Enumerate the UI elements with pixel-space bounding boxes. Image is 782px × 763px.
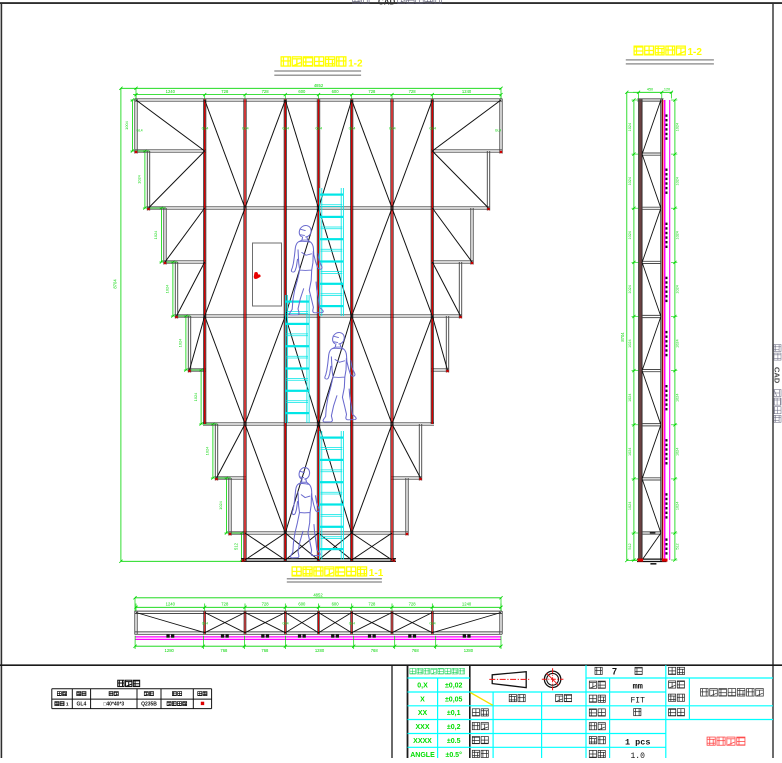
svg-text:1024: 1024 [675,393,679,401]
svg-text:mm: mm [633,682,643,692]
svg-text:1024: 1024 [193,392,198,401]
svg-text:1024: 1024 [153,230,158,239]
svg-text:GL4: GL4 [315,127,322,131]
svg-text:±0,1: ±0,1 [447,710,461,717]
svg-text:1.0: 1.0 [630,752,645,758]
svg-text:CAD: CAD [378,0,396,7]
svg-text:600: 600 [298,89,306,94]
svg-text:600: 600 [298,602,306,607]
svg-text:1-1: 1-1 [369,568,384,579]
svg-text:728: 728 [262,602,270,607]
svg-text:GL4: GL4 [429,622,435,626]
svg-text:1024: 1024 [628,502,632,510]
svg-text:728: 728 [409,602,417,607]
svg-text:1024: 1024 [628,123,632,131]
svg-text:GL4: GL4 [136,129,142,133]
svg-text:1004: 1004 [124,120,129,129]
svg-text:512: 512 [628,543,632,549]
svg-text:CAD: CAD [773,367,782,384]
svg-text:1024: 1024 [675,231,679,239]
svg-text:±0.5°: ±0.5° [446,751,463,758]
svg-text:768: 768 [371,648,379,653]
svg-text:XXXX: XXXX [413,738,432,745]
svg-text:Q235B: Q235B [141,702,157,708]
svg-text:728: 728 [409,89,417,94]
svg-text:8704: 8704 [620,332,625,342]
svg-text:GL4: GL4 [389,127,396,131]
svg-text:7: 7 [612,667,617,677]
svg-text:1024: 1024 [675,285,679,293]
svg-text:GL4: GL4 [282,127,289,131]
svg-text:1024: 1024 [675,339,679,347]
svg-text:1280: 1280 [165,648,175,653]
svg-text:±0,02: ±0,02 [445,683,463,690]
svg-text:1024: 1024 [675,123,679,131]
svg-text:0,X: 0,X [417,683,428,690]
svg-text:1240: 1240 [166,602,176,607]
svg-text:120: 120 [664,88,670,92]
svg-text:GL4: GL4 [77,702,87,708]
svg-text:450: 450 [647,88,653,92]
svg-text:728: 728 [221,89,229,94]
svg-text:GL4: GL4 [202,622,208,626]
svg-text:1 pcs: 1 pcs [625,737,651,747]
svg-text:GL4: GL4 [349,127,356,131]
svg-text:1280: 1280 [315,648,325,653]
svg-text:□40*40*3: □40*40*3 [103,702,124,708]
svg-text:1024: 1024 [675,448,679,456]
svg-text:4852: 4852 [313,592,323,597]
svg-text:1-2: 1-2 [348,58,363,69]
svg-text:FIT: FIT [630,697,645,706]
svg-text:1024: 1024 [628,285,632,293]
svg-text:512: 512 [675,543,679,549]
svg-text:1024: 1024 [675,502,679,510]
svg-text:GL4: GL4 [429,127,436,131]
svg-text:1024: 1024 [628,231,632,239]
svg-text:±0,2: ±0,2 [447,724,461,731]
svg-text:ANGLE: ANGLE [410,752,435,758]
svg-text:GL4: GL4 [349,622,355,626]
svg-text:1024: 1024 [137,174,142,183]
svg-text:1240: 1240 [462,602,472,607]
svg-text:600: 600 [332,89,340,94]
svg-text:±0,05: ±0,05 [445,697,463,704]
svg-text:1024: 1024 [675,177,679,185]
svg-text:X: X [420,697,425,704]
svg-text:728: 728 [368,89,376,94]
svg-text:1240: 1240 [166,89,176,94]
svg-text:GL4: GL4 [282,622,288,626]
svg-text:1024: 1024 [165,284,170,293]
svg-text:512: 512 [233,542,238,550]
svg-text:600: 600 [332,602,340,607]
svg-text:1024: 1024 [628,339,632,347]
svg-text:XXX: XXX [415,724,429,731]
svg-text:GL4: GL4 [495,129,501,133]
svg-text:8704: 8704 [113,279,118,289]
svg-text:GL4: GL4 [202,127,209,131]
svg-text:1024: 1024 [178,338,183,347]
svg-text:1280: 1280 [464,648,474,653]
svg-text:±0.5: ±0.5 [447,738,461,745]
svg-text:XX: XX [418,710,428,717]
svg-text:768: 768 [220,648,228,653]
svg-text:768: 768 [412,648,420,653]
svg-text:1024: 1024 [628,177,632,185]
svg-text:768: 768 [261,648,269,653]
svg-text:728: 728 [221,602,229,607]
svg-text:1: 1 [66,701,69,707]
svg-text:4852: 4852 [314,83,324,88]
svg-text:1240: 1240 [462,89,472,94]
svg-text:1-2: 1-2 [688,47,703,58]
svg-text:1024: 1024 [628,393,632,401]
svg-text:1024: 1024 [218,500,223,509]
svg-text:1024: 1024 [628,448,632,456]
svg-text:728: 728 [262,89,270,94]
svg-text:728: 728 [368,602,376,607]
svg-text:1024: 1024 [205,446,210,455]
svg-text:GL4: GL4 [242,127,249,131]
